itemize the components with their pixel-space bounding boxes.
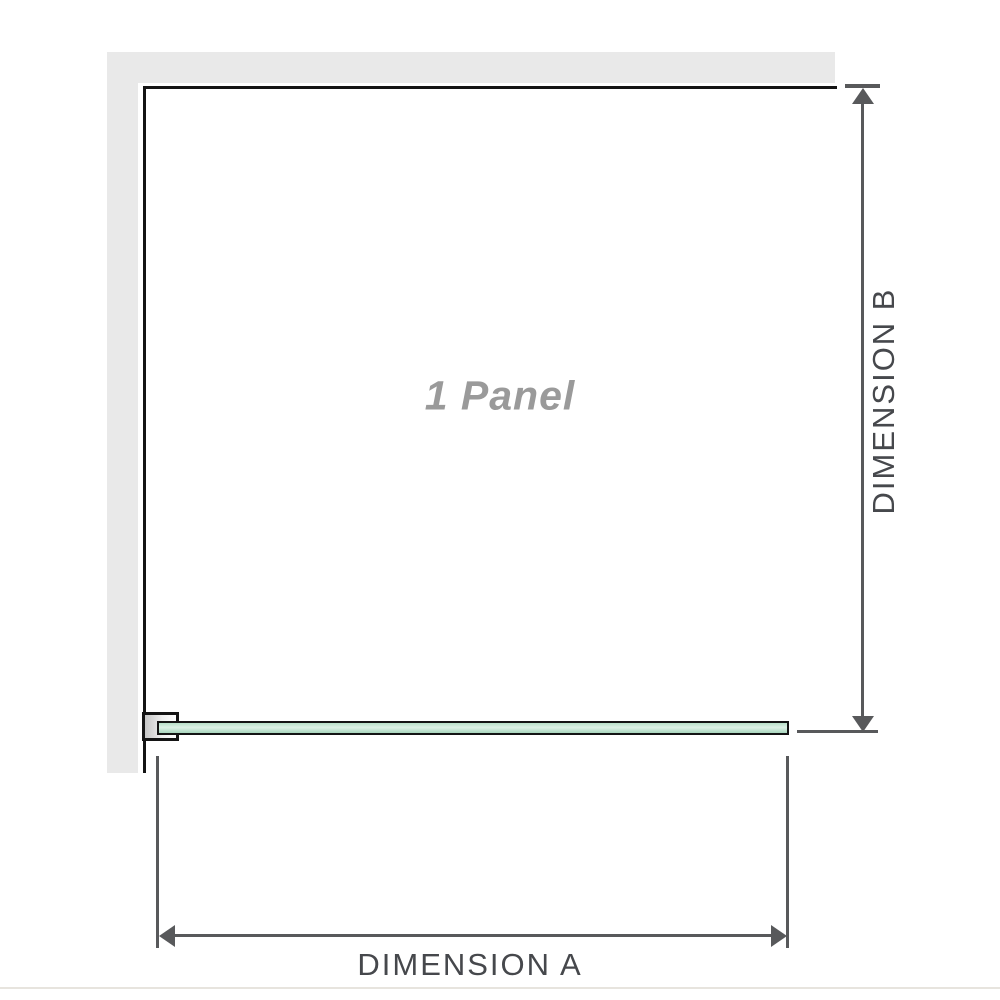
bottom-divider	[0, 987, 1000, 989]
dimension-b-line	[861, 99, 864, 719]
panel-count-label: 1 Panel	[425, 373, 576, 420]
wall-top	[107, 52, 835, 83]
dimension-a-right-extension	[786, 756, 789, 948]
glass-panel	[157, 721, 789, 735]
dimension-a-label: DIMENSION A	[357, 947, 582, 983]
dimension-a-left-extension	[156, 756, 159, 948]
dimension-b-label: DIMENSION B	[866, 288, 902, 515]
dimension-a-right-arrowhead-icon	[771, 925, 787, 947]
panel-frame-left-edge	[143, 86, 146, 773]
dimension-a-line	[170, 934, 778, 937]
panel-frame-top-edge	[143, 86, 837, 89]
dimension-b-bottom-tick	[797, 730, 878, 733]
diagram-canvas: 1 Panel DIMENSION B DIMENSION A	[0, 0, 1000, 1000]
wall-left	[107, 52, 138, 773]
